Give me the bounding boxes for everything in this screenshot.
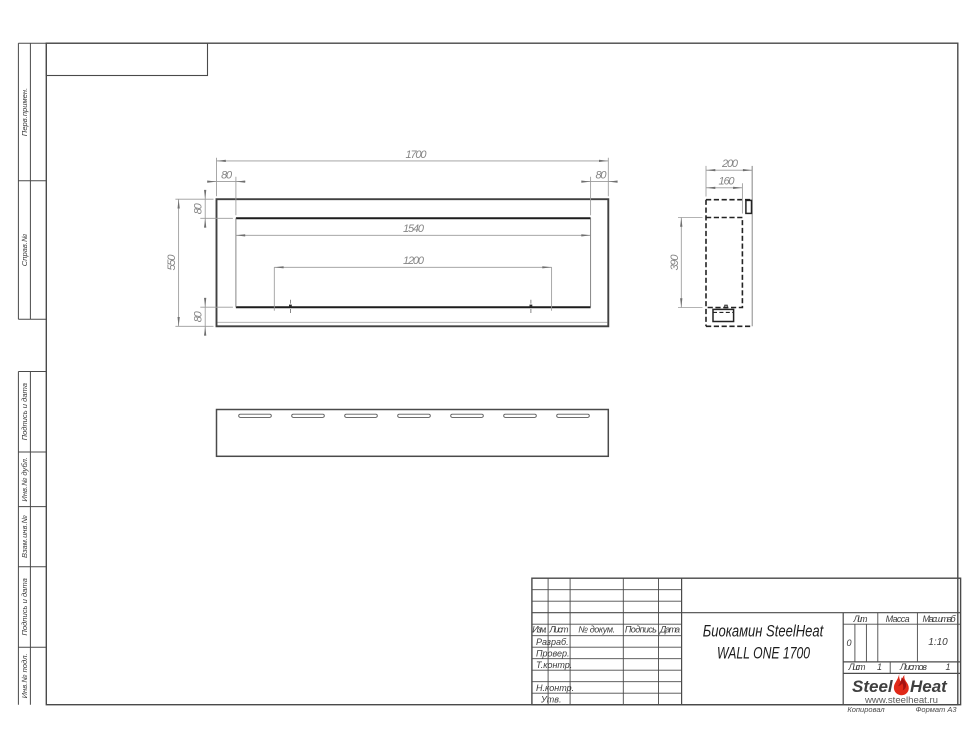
svg-text:1200: 1200 xyxy=(403,255,425,267)
svg-text:Перв.примен.: Перв.примен. xyxy=(20,88,29,136)
svg-text:160: 160 xyxy=(719,175,736,187)
svg-text:1:10: 1:10 xyxy=(928,637,948,648)
svg-text:Лист: Лист xyxy=(848,662,867,672)
svg-text:Подпись и дата: Подпись и дата xyxy=(20,383,29,440)
svg-text:Подпись: Подпись xyxy=(625,625,657,635)
svg-text:Steel: Steel xyxy=(852,677,894,696)
svg-text:1: 1 xyxy=(877,662,882,672)
svg-text:Листов: Листов xyxy=(899,662,927,672)
svg-text:№ докум.: № докум. xyxy=(578,625,615,635)
svg-text:550: 550 xyxy=(166,254,178,271)
svg-text:200: 200 xyxy=(721,158,739,170)
svg-text:1700: 1700 xyxy=(406,149,428,161)
svg-text:Изм.: Изм. xyxy=(532,625,547,635)
svg-text:Масса: Масса xyxy=(886,614,910,624)
svg-text:Подпись и дата: Подпись и дата xyxy=(20,578,29,635)
svg-text:80: 80 xyxy=(193,310,205,322)
svg-text:1540: 1540 xyxy=(403,223,425,235)
svg-text:80: 80 xyxy=(221,170,233,182)
svg-text:Разраб.: Разраб. xyxy=(536,637,569,647)
svg-text:Т.контр.: Т.контр. xyxy=(536,660,572,670)
svg-text:390: 390 xyxy=(669,254,681,271)
svg-text:Дата: Дата xyxy=(659,625,680,635)
svg-text:Провер.: Провер. xyxy=(536,648,570,658)
svg-text:Копировал: Копировал xyxy=(847,705,885,714)
svg-text:Лист: Лист xyxy=(549,625,570,635)
svg-text:Биокамин SteelHeat: Биокамин SteelHeat xyxy=(703,623,824,641)
svg-text:1: 1 xyxy=(945,662,950,672)
svg-text:Справ.№: Справ.№ xyxy=(20,234,29,266)
svg-text:Формат А3: Формат А3 xyxy=(915,705,957,714)
svg-text:80: 80 xyxy=(193,202,205,214)
svg-text:WALL ONE 1700: WALL ONE 1700 xyxy=(717,645,810,663)
svg-text:80: 80 xyxy=(596,170,608,182)
svg-text:Heat: Heat xyxy=(910,677,948,696)
svg-text:Взам.инв.№: Взам.инв.№ xyxy=(20,515,29,558)
svg-text:Инв.№ подл.: Инв.№ подл. xyxy=(20,653,29,698)
svg-text:Масштаб: Масштаб xyxy=(923,614,957,624)
svg-text:Лит.: Лит. xyxy=(853,614,868,624)
svg-text:Н.контр.: Н.контр. xyxy=(536,683,574,693)
svg-text:Инв.№ дубл.: Инв.№ дубл. xyxy=(20,457,29,502)
svg-text:Утв.: Утв. xyxy=(540,694,561,704)
svg-text:0: 0 xyxy=(846,638,851,648)
